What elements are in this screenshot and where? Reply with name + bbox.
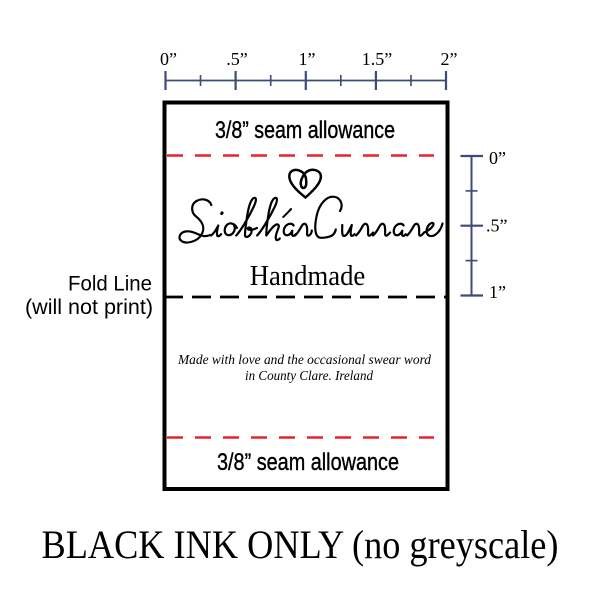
svg-text:3/8” seam allowance: 3/8” seam allowance (215, 117, 395, 144)
svg-text:(will not print): (will not print) (25, 295, 153, 319)
svg-text:Made with love and the occasio: Made with love and the occasional swear … (177, 352, 431, 367)
svg-text:0”: 0” (489, 148, 506, 168)
svg-text:.5”: .5” (226, 49, 248, 69)
svg-text:Handmade: Handmade (250, 261, 366, 292)
svg-text:1”: 1” (299, 49, 316, 69)
svg-text:2”: 2” (441, 49, 458, 69)
svg-text:0”: 0” (160, 49, 177, 69)
svg-text:BLACK INK ONLY (no greyscale): BLACK INK ONLY (no greyscale) (42, 522, 559, 567)
svg-text:3/8” seam allowance: 3/8” seam allowance (217, 449, 399, 476)
svg-text:1”: 1” (489, 282, 506, 302)
svg-text:Fold Line: Fold Line (68, 272, 152, 296)
svg-text:1.5”: 1.5” (362, 49, 393, 69)
svg-text:.5”: .5” (486, 216, 508, 236)
svg-text:in County Clare. Ireland: in County Clare. Ireland (245, 368, 373, 383)
